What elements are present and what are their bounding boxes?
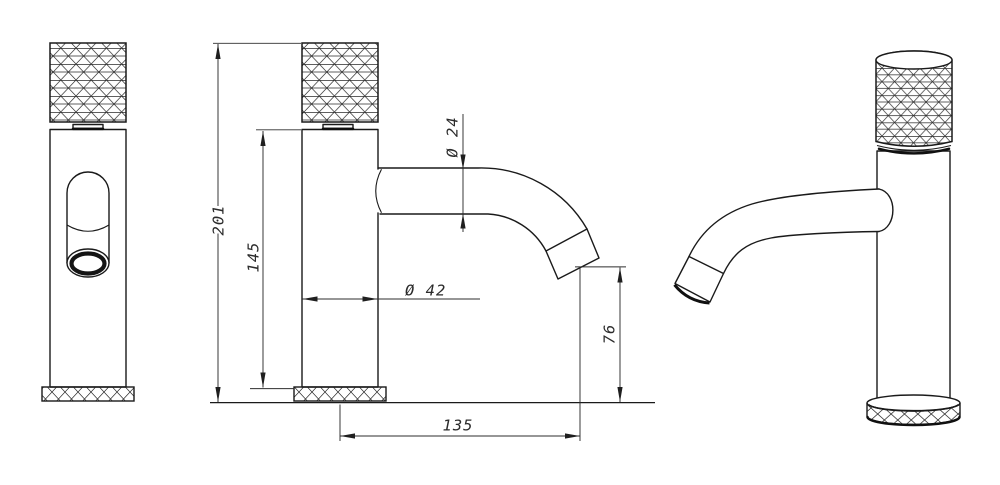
dim-body-height: 145 [245,130,302,389]
dim-total-height: 201 [210,43,302,402]
side-body [302,130,378,388]
dim-201-label: 201 [210,205,228,236]
side-spout-tip [546,229,599,279]
dim-135-label: 135 [443,417,474,435]
side-spout-top-edge [378,168,587,229]
side-view [210,43,655,403]
front-handle-knurl [50,43,126,122]
side-base-knurl [294,387,386,401]
perspective-view [675,51,961,425]
dim-24-label: Ø 24 [444,116,462,157]
faucet-technical-drawing: 201 145 Ø 42 Ø 24 76 [0,0,1000,485]
dim-145-label: 145 [245,242,263,273]
dim-201-arrow-bottom [215,387,220,402]
dim-24-arrow-bottom [460,214,465,229]
drawing-sheet: 201 145 Ø 42 Ø 24 76 [0,0,1000,485]
persp-body [877,151,950,399]
dim-76-label: 76 [601,324,619,345]
dim-201-arrow-top [215,44,220,59]
dim-spout-clearance: 76 [575,267,626,402]
dim-145-arrow-top [260,131,265,146]
front-view [42,43,134,401]
dim-135-arrow-left [340,433,355,438]
front-aerator-ring [72,254,105,274]
dim-135-arrow-right [565,433,580,438]
dim-76-arrow-bottom [617,387,622,402]
persp-handle-top-ellipse [876,51,952,69]
side-handle-knurl [302,43,378,122]
dim-145-arrow-bottom [260,373,265,388]
dim-42-label: Ø 42 [405,282,446,300]
front-base-knurl [42,387,134,401]
dim-76-arrow-top [617,268,622,283]
